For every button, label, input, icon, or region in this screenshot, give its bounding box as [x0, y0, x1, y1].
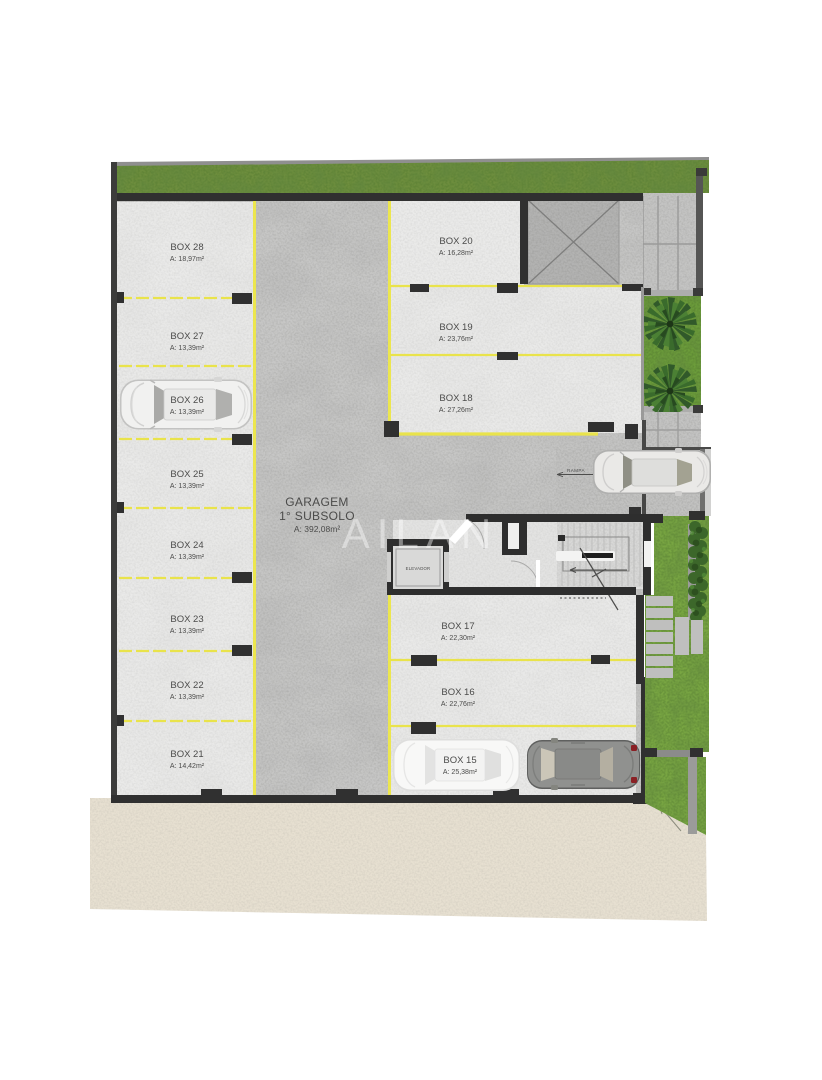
- svg-text:A: 13,39m²: A: 13,39m²: [170, 554, 205, 561]
- svg-text:AILAN: AILAN: [342, 510, 498, 557]
- svg-text:A: 22,76m²: A: 22,76m²: [441, 701, 476, 708]
- svg-text:A: 13,39m²: A: 13,39m²: [170, 628, 205, 635]
- svg-text:BOX 15: BOX 15: [443, 755, 476, 766]
- svg-text:A: 14,42m²: A: 14,42m²: [170, 763, 205, 770]
- svg-text:ELEVADOR: ELEVADOR: [406, 566, 431, 571]
- svg-text:BOX 28: BOX 28: [170, 242, 203, 253]
- svg-text:BOX 19: BOX 19: [439, 322, 472, 333]
- svg-text:BOX 24: BOX 24: [170, 540, 203, 551]
- svg-text:BOX 18: BOX 18: [439, 393, 472, 404]
- svg-text:A: 13,39m²: A: 13,39m²: [170, 694, 205, 701]
- svg-text:BOX 17: BOX 17: [441, 621, 474, 632]
- svg-text:A: 27,26m²: A: 27,26m²: [439, 407, 474, 414]
- svg-text:A: 23,76m²: A: 23,76m²: [439, 336, 474, 343]
- svg-text:A: 16,28m²: A: 16,28m²: [439, 250, 474, 257]
- svg-text:BOX 20: BOX 20: [439, 236, 472, 247]
- svg-text:A: 25,38m²: A: 25,38m²: [443, 769, 478, 776]
- svg-text:A: 392,08m²: A: 392,08m²: [294, 524, 340, 534]
- svg-text:A: 13,39m²: A: 13,39m²: [170, 345, 205, 352]
- svg-text:BOX 23: BOX 23: [170, 614, 203, 625]
- svg-text:BOX 21: BOX 21: [170, 749, 203, 760]
- svg-text:BOX 27: BOX 27: [170, 331, 203, 342]
- svg-text:A: 13,39m²: A: 13,39m²: [170, 483, 205, 490]
- svg-text:1° SUBSOLO: 1° SUBSOLO: [279, 509, 355, 523]
- svg-text:A: 18,97m²: A: 18,97m²: [170, 256, 205, 263]
- svg-text:BOX 25: BOX 25: [170, 469, 203, 480]
- svg-text:A: 22,30m²: A: 22,30m²: [441, 635, 476, 642]
- svg-text:GARAGEM: GARAGEM: [285, 495, 348, 509]
- svg-text:BOX 26: BOX 26: [170, 395, 203, 406]
- svg-text:BOX 22: BOX 22: [170, 680, 203, 691]
- svg-text:RAMPA: RAMPA: [567, 468, 586, 473]
- svg-text:BOX 16: BOX 16: [441, 687, 474, 698]
- svg-text:A: 13,39m²: A: 13,39m²: [170, 409, 205, 416]
